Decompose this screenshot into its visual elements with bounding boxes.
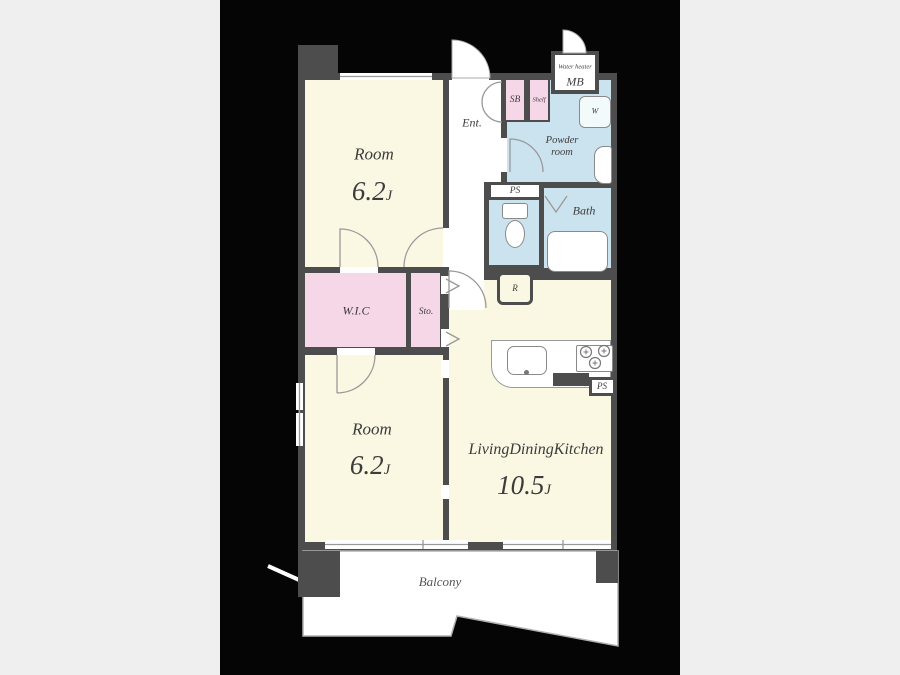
- room-bottom-name: Room: [352, 421, 392, 440]
- powder-room-label-1: Powder: [546, 135, 579, 147]
- room-bottom-size-value: 6.2: [350, 450, 384, 480]
- room-top-size-unit: J: [386, 188, 393, 204]
- bathtub: [547, 231, 608, 272]
- room-top-name: Room: [354, 146, 394, 165]
- ldk-name: LivingDiningKitchen: [468, 441, 603, 459]
- door-gap-room-top: [443, 228, 449, 267]
- door-gap-powder: [501, 138, 507, 172]
- room-top-size-value: 6.2: [352, 176, 386, 206]
- entrance-label: Ent.: [462, 116, 482, 129]
- door-gap-storage-b: [441, 329, 449, 347]
- washbasin: [594, 146, 612, 184]
- door-gap-wic-south: [337, 348, 375, 355]
- sink-faucet-dot: [524, 370, 529, 375]
- balcony-pillar-right: [596, 551, 618, 583]
- water-heater-label: Water heater: [558, 63, 592, 70]
- door-gap-room-bottom-b: [441, 485, 449, 499]
- balcony-label: Balcony: [419, 575, 462, 589]
- storage-label: Sto.: [419, 307, 434, 317]
- shoebox-label: SB: [510, 95, 521, 105]
- stove: [576, 345, 613, 372]
- room-bottom-size: 6.2J: [350, 451, 390, 481]
- ps-toilet-label: PS: [510, 186, 521, 196]
- fridge-label: R: [512, 284, 518, 294]
- balcony-pillar-left: [298, 551, 340, 597]
- ldk-size-value: 10.5: [497, 470, 544, 500]
- door-gap-wic-north: [340, 267, 378, 273]
- window-balcony-left: [325, 540, 468, 549]
- ldk-floor: [449, 280, 611, 542]
- window-left-wall-b: [296, 413, 303, 446]
- top-left-pillar: [298, 45, 338, 75]
- kitchen-wall-stub: [553, 373, 589, 386]
- room-bottom-floor: [305, 355, 443, 542]
- room-top-floor: [305, 80, 443, 267]
- powder-room-label-2: room: [551, 147, 573, 159]
- toilet-bowl: [505, 220, 525, 248]
- wic-label: W.I.C: [343, 304, 370, 317]
- toilet-tank: [502, 203, 528, 219]
- hallway-floor: [449, 182, 484, 310]
- room-bottom-size-unit: J: [384, 462, 391, 478]
- washer-label: W: [592, 108, 599, 117]
- shelf-label: Shelf: [533, 96, 546, 103]
- entrance-floor: [449, 80, 501, 182]
- floorplan-page: Room 6.2J Room 6.2J LivingDiningKitchen …: [0, 0, 900, 675]
- meterbox-label: MB: [566, 75, 583, 88]
- door-gap-entry: [452, 74, 489, 80]
- window-balcony-right: [503, 540, 611, 549]
- door-gap-room-bottom-a: [441, 360, 449, 378]
- powder-room-floor-left: [507, 122, 550, 182]
- window-left-wall-a: [296, 383, 303, 410]
- ldk-size: 10.5J: [497, 471, 551, 501]
- ldk-size-unit: J: [544, 482, 551, 498]
- room-top-size: 6.2J: [352, 177, 392, 207]
- bath-label: Bath: [573, 204, 596, 217]
- ps-kitchen-label: PS: [597, 382, 607, 392]
- door-gap-storage-a: [441, 276, 449, 294]
- window-room-top: [340, 73, 432, 80]
